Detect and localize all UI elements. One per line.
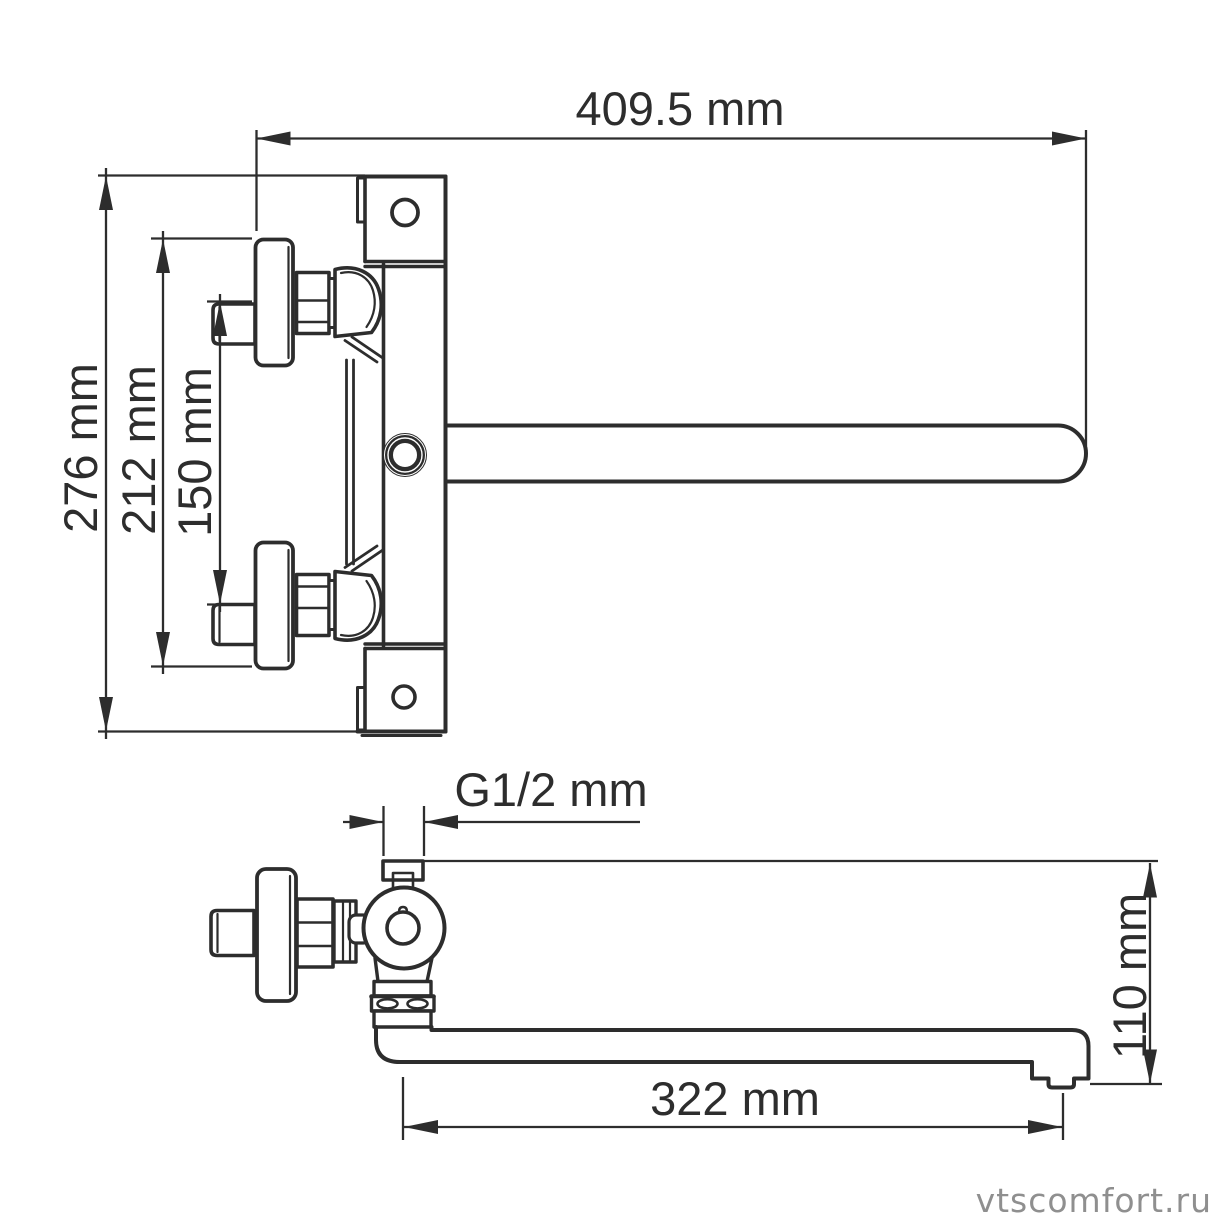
dim-label-thread: G1/2 mm <box>454 763 647 816</box>
swivel-band-side <box>372 997 435 1012</box>
inlet-flange-top <box>256 240 294 366</box>
spout-rounded-end-front <box>1058 426 1086 482</box>
dim-label-spout-drop: 110 mm <box>1103 893 1156 1059</box>
thread-collar-side <box>383 861 423 880</box>
dim-arrow-up <box>99 176 113 210</box>
dim-arrow-right <box>1052 132 1086 146</box>
dim-arrow-left <box>404 1120 438 1134</box>
dim-spout-reach: 322 mm <box>403 1072 1063 1140</box>
dim-label-overall-height: 276 mm <box>54 363 107 533</box>
dim-label-spout-reach: 322 mm <box>650 1072 820 1125</box>
side-view <box>211 861 1089 1088</box>
dim-arrow-up <box>156 239 170 273</box>
valve-body-side <box>364 888 445 969</box>
watermark-text: vtscomfort.ru <box>976 1181 1212 1220</box>
front-view <box>213 177 1086 736</box>
dim-arrow-right <box>1028 1120 1062 1134</box>
dim-spout-drop: 110 mm <box>424 861 1162 1084</box>
swivel-ring-side <box>374 982 431 997</box>
inlet-flange-bottom <box>256 543 294 669</box>
dim-arrow-left <box>257 132 291 146</box>
swivel-cone-side <box>375 958 378 982</box>
hex-nut-side <box>297 899 333 967</box>
inlet-hex-nut-bottom <box>297 575 330 636</box>
dim-arrow-down <box>99 697 113 731</box>
dim-label-inlet-spacing: 150 mm <box>168 367 221 537</box>
dim-arrow-down <box>156 632 170 666</box>
dim-overall-width: 409.5 mm <box>257 82 1087 446</box>
mounting-hole-top <box>392 200 418 226</box>
dimensions: 409.5 mm 276 mm 212 mm 150 mm <box>54 82 1162 1140</box>
mounting-hole-bottom <box>393 686 415 708</box>
inlet-hex-nut-top <box>297 273 330 334</box>
technical-drawing: 409.5 mm 276 mm 212 mm 150 mm <box>0 0 1222 1222</box>
dim-arrow-down <box>213 570 227 604</box>
dim-label-overall-width: 409.5 mm <box>576 82 785 135</box>
dim-arrow-up <box>1143 864 1157 898</box>
drawing-canvas: 409.5 mm 276 mm 212 mm 150 mm <box>0 0 1222 1222</box>
dim-arrow-left <box>424 815 458 829</box>
dim-label-flange-span: 212 mm <box>112 365 165 535</box>
dim-thread: G1/2 mm <box>343 763 648 856</box>
dim-arrow-right <box>350 815 384 829</box>
swivel-collar-side <box>374 1011 431 1027</box>
